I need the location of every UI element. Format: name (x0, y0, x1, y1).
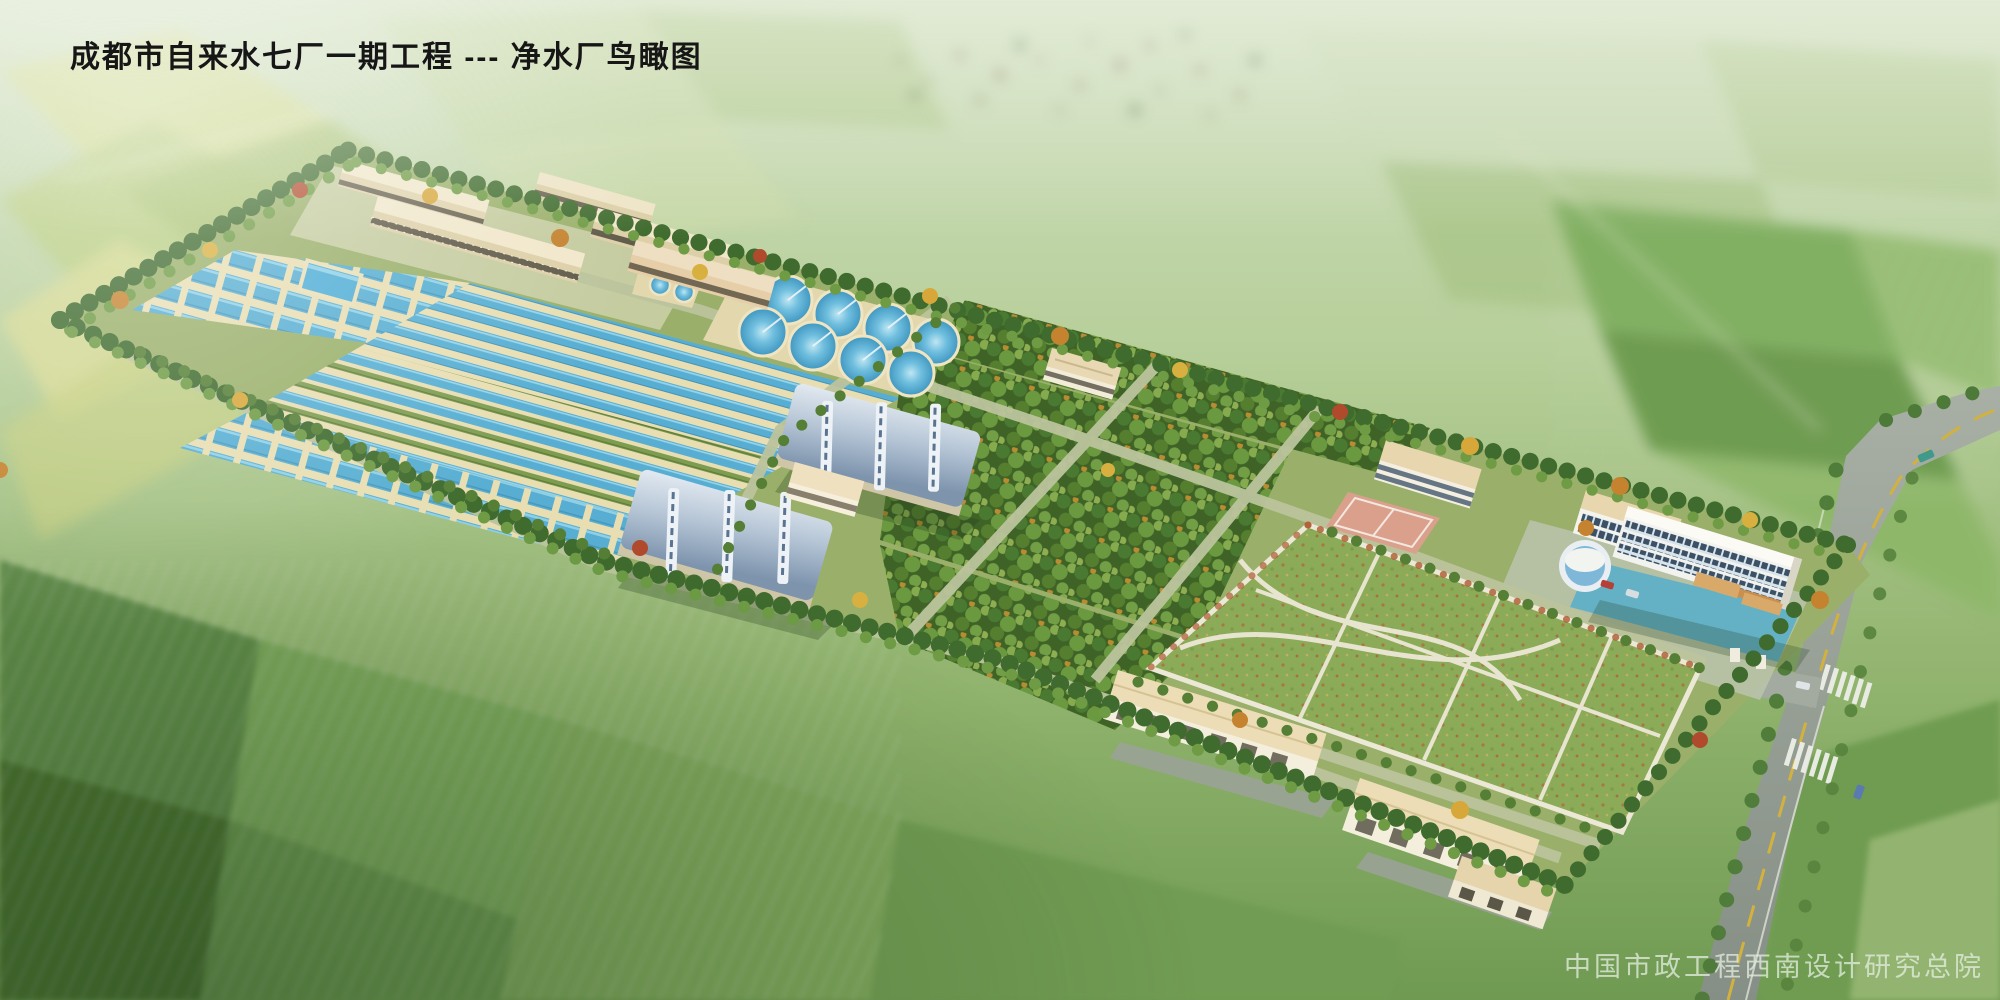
page-title: 成都市自来水七厂一期工程 --- 净水厂鸟瞰图 (70, 32, 703, 76)
aerial-rendering-canvas: 成都市自来水七厂一期工程 --- 净水厂鸟瞰图 中国市政工程西南设计研究总院 (0, 0, 2000, 1000)
vignette (0, 0, 2000, 1000)
design-institute-credit: 中国市政工程西南设计研究总院 (1564, 945, 1984, 984)
scene (0, 0, 2000, 1000)
